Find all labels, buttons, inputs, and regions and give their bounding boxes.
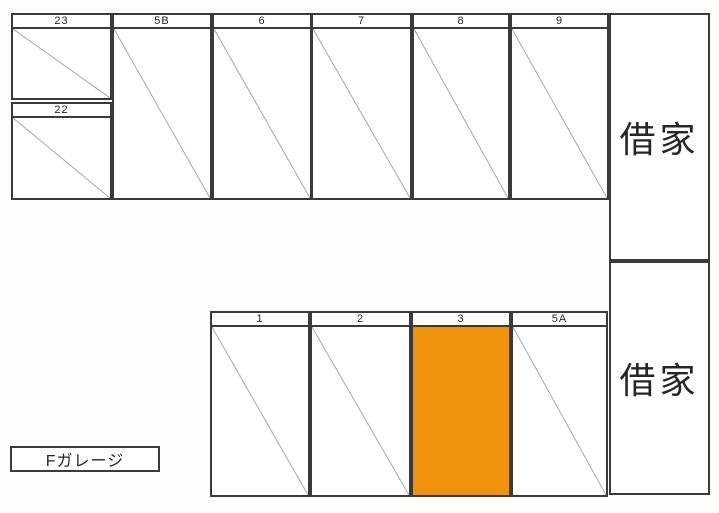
space-body xyxy=(513,327,606,495)
space-label-22: 22 xyxy=(13,104,110,118)
parking-space-5B: 5B xyxy=(112,13,212,200)
space-label-6: 6 xyxy=(214,15,310,29)
garage-name-box: Fガレージ xyxy=(10,446,160,472)
space-body xyxy=(313,29,410,198)
space-label-8: 8 xyxy=(414,15,508,29)
parking-space-5A: 5A xyxy=(511,311,608,497)
parking-space-2: 2 xyxy=(310,311,411,497)
rental-house-top: 借家 xyxy=(609,13,710,261)
diagonal-line xyxy=(513,327,606,495)
diagonal-line xyxy=(414,29,508,198)
space-body xyxy=(414,29,508,198)
diagonal-line xyxy=(312,327,409,495)
parking-space-1: 1 xyxy=(210,311,310,497)
space-label-3: 3 xyxy=(413,313,509,327)
diagonal-line xyxy=(13,29,110,98)
garage-floor-plan: 23 22 5B 6 7 8 9 xyxy=(0,0,719,513)
diagonal-line xyxy=(214,29,310,198)
diagonal-line xyxy=(512,29,607,198)
rental-house-label: 借家 xyxy=(619,111,699,163)
space-label-23: 23 xyxy=(13,15,110,29)
space-label-5A: 5A xyxy=(513,313,606,327)
space-body xyxy=(13,118,110,198)
parking-space-22: 22 xyxy=(11,102,112,200)
rental-house-bottom: 借家 xyxy=(609,261,710,495)
space-body xyxy=(512,29,607,198)
space-label-7: 7 xyxy=(313,15,410,29)
space-label-1: 1 xyxy=(212,313,308,327)
space-body xyxy=(312,327,409,495)
parking-space-7: 7 xyxy=(311,13,412,200)
diagonal-line xyxy=(13,118,110,198)
space-label-5B: 5B xyxy=(114,15,210,29)
parking-space-8: 8 xyxy=(412,13,510,200)
space-body xyxy=(214,29,310,198)
diagonal-line xyxy=(114,29,210,198)
diagonal-line xyxy=(313,29,410,198)
space-body xyxy=(212,327,308,495)
rental-house-label: 借家 xyxy=(619,352,699,404)
space-label-2: 2 xyxy=(312,313,409,327)
diagonal-line xyxy=(212,327,308,495)
garage-name-label: Fガレージ xyxy=(46,447,124,471)
space-body-highlighted xyxy=(413,327,509,495)
space-label-9: 9 xyxy=(512,15,607,29)
space-body xyxy=(13,29,110,98)
parking-space-6: 6 xyxy=(212,13,312,200)
parking-space-23: 23 xyxy=(11,13,112,100)
space-body xyxy=(114,29,210,198)
parking-space-3-highlighted: 3 xyxy=(411,311,511,497)
parking-space-9: 9 xyxy=(510,13,609,200)
